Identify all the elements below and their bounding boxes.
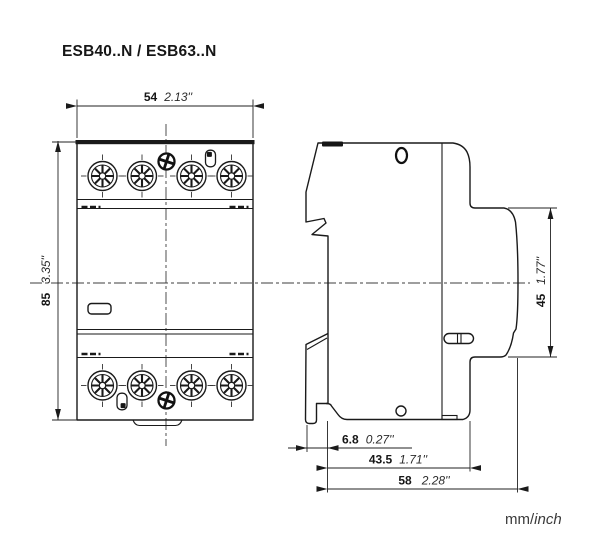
front-top-edge bbox=[76, 140, 255, 144]
coding-marker-bottom bbox=[117, 393, 127, 410]
height-dimension: 853.35'' bbox=[39, 141, 77, 420]
width-dimension-label: 542.13'' bbox=[144, 90, 193, 104]
indicator-window bbox=[88, 304, 111, 315]
din-rail-clip bbox=[306, 334, 329, 424]
mounting-hole-top bbox=[396, 148, 407, 163]
terminal-screw bbox=[170, 364, 213, 407]
total-depth-dimension: 582.28'' bbox=[317, 474, 529, 492]
side-body-outline bbox=[306, 143, 518, 420]
center-fixing-screw-top bbox=[157, 152, 175, 170]
side-view bbox=[306, 142, 519, 424]
total-depth-label: 582.28'' bbox=[398, 474, 450, 488]
body-depth-label: 43.51.71'' bbox=[369, 453, 428, 467]
coding-marker-top bbox=[206, 150, 216, 167]
terminal-screw bbox=[81, 155, 124, 198]
page-title: ESB40..N / ESB63..N bbox=[62, 43, 217, 60]
units-note: mm/inch bbox=[505, 511, 562, 528]
terminal-screw bbox=[210, 155, 253, 198]
side-slot bbox=[444, 334, 474, 344]
terminal-screw bbox=[210, 364, 253, 407]
center-fixing-screw-bottom bbox=[157, 391, 175, 409]
contact-block-height-label: 451.77'' bbox=[534, 256, 548, 307]
terminal-screw bbox=[121, 155, 164, 198]
depth-dimensions: 6.80.27'' 43.51.71'' 582.28'' bbox=[288, 358, 529, 493]
height-dimension-label: 853.35'' bbox=[39, 255, 53, 306]
clip-overhang-label: 6.80.27'' bbox=[342, 433, 394, 447]
top-vent-tick bbox=[322, 142, 343, 147]
bottom-tab bbox=[133, 420, 182, 426]
body-depth-dimension: 43.51.71'' bbox=[317, 453, 482, 471]
contact-block-height-dimension: 451.77'' bbox=[508, 208, 557, 357]
front-panel-lines bbox=[77, 200, 253, 358]
mounting-hole-bottom bbox=[396, 406, 406, 416]
technical-drawing: ESB40..N / ESB63..N bbox=[0, 0, 615, 548]
drawing-page: ESB40..N / ESB63..N bbox=[0, 0, 615, 548]
width-dimension: 542.13'' bbox=[66, 90, 264, 138]
